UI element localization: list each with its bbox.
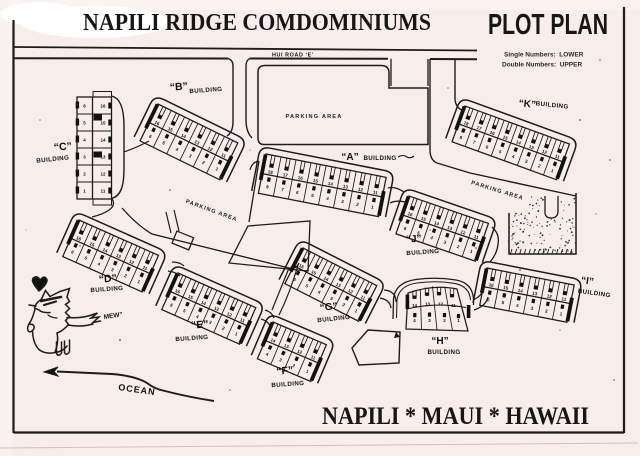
svg-text:PARKING AREA: PARKING AREA — [286, 114, 343, 120]
svg-text:14: 14 — [412, 303, 418, 308]
svg-text:12: 12 — [100, 172, 106, 177]
svg-text:11: 11 — [101, 189, 106, 194]
svg-text:“G”: “G” — [319, 301, 338, 314]
svg-text:16: 16 — [100, 104, 106, 109]
svg-text:“H”: “H” — [431, 336, 448, 347]
svg-text:“E”: “E” — [191, 318, 209, 331]
svg-text:“B”: “B” — [169, 80, 188, 93]
svg-text:“A”: “A” — [341, 152, 358, 163]
svg-text:BUILDING: BUILDING — [363, 155, 396, 162]
svg-text:Double Numbers: UPPER: Double Numbers: UPPER — [502, 61, 582, 68]
svg-text:13: 13 — [100, 155, 106, 160]
svg-text:NAPILI * MAUI * HAWAII: NAPILI * MAUI * HAWAII — [322, 403, 589, 430]
svg-text:11: 11 — [451, 303, 456, 308]
svg-text:BUILDING: BUILDING — [427, 349, 460, 356]
svg-text:12: 12 — [438, 302, 444, 307]
svg-text:PLOT PLAN: PLOT PLAN — [488, 9, 608, 41]
svg-text:“F”: “F” — [276, 364, 294, 377]
svg-text:“I”: “I” — [580, 275, 594, 288]
svg-text:15: 15 — [100, 121, 106, 126]
svg-text:“C”: “C” — [53, 140, 72, 153]
svg-text:“J”: “J” — [406, 233, 422, 245]
svg-text:“D”: “D” — [98, 272, 117, 285]
svg-text:HUI ROAD ‘E’: HUI ROAD ‘E’ — [272, 53, 314, 59]
svg-text:13: 13 — [425, 302, 431, 307]
svg-text:NAPILI RIDGE COMDOMINIUMS: NAPILI RIDGE COMDOMINIUMS — [83, 10, 431, 36]
svg-text:14: 14 — [100, 138, 106, 143]
svg-text:Single Numbers: LOWER: Single Numbers: LOWER — [504, 52, 584, 59]
svg-text:“K”: “K” — [518, 98, 536, 111]
